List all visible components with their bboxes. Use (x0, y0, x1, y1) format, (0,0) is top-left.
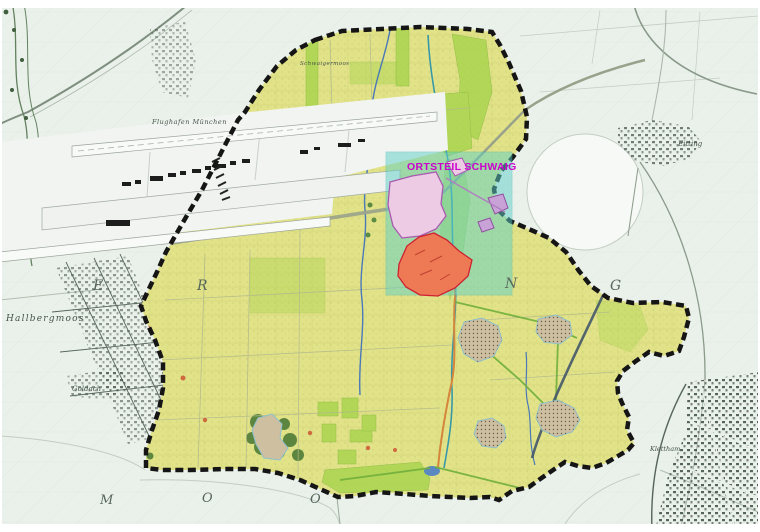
municipality-map-canvas: Flughafen München ORTSTEIL SCHWAIG Hallb… (0, 0, 760, 532)
schwaig-industrial-area (388, 172, 446, 238)
letter-e: E (92, 278, 103, 294)
letter-o2: O (310, 492, 321, 507)
map-screenshot: Flughafen München ORTSTEIL SCHWAIG Hallb… (0, 0, 760, 532)
eitting-label: Eitting (677, 140, 703, 148)
flughafen-label: Flughafen München (151, 118, 227, 126)
schwaigermoos-label: Schwaigermoos (300, 61, 349, 67)
letter-r: R (196, 278, 208, 294)
letter-m: M (99, 493, 114, 508)
goldach-label: Goldach (72, 385, 101, 393)
letter-g: G (610, 278, 621, 294)
hallbergmoos-label: Hallbergmoos (5, 314, 85, 324)
letter-n: N (504, 276, 518, 292)
schwaig-highlight-label: ORTSTEIL SCHWAIG (407, 161, 517, 173)
letter-o1: O (202, 491, 213, 506)
klettham-label: Klettham (649, 445, 680, 453)
